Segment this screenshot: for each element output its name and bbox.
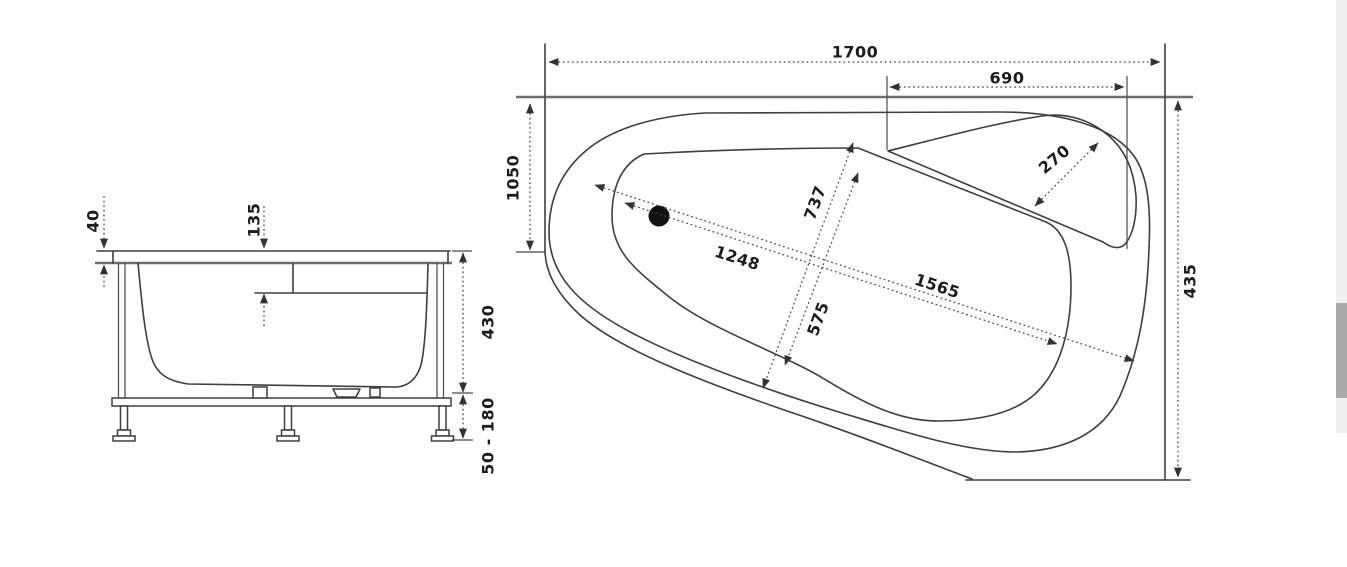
plan-view: 1700 690 1050 435 1248 1565 737 575 270 [504,43,1200,481]
dim-line-1565 [595,185,1134,361]
tub-support-pad [370,388,380,397]
dim-label-seat-depth: 135 [245,203,264,238]
dim-label-overall-length: 1700 [832,43,879,62]
leg-middle [277,406,299,441]
frame-bar [112,398,451,406]
tub-support-pad [253,387,267,398]
basin-outline [612,148,1071,421]
scrollbar-track[interactable] [1336,0,1347,433]
bathtub-spec-page: 40 135 430 50 - 180 [0,0,1347,567]
dim-label-basin-length: 1248 [712,242,762,274]
leg-right [432,406,454,441]
dim-line-1248 [625,203,1057,344]
scrollbar-thumb[interactable] [1336,303,1347,398]
dim-label-corner-shelf-length: 690 [990,69,1025,88]
tub-body-outline [138,263,428,387]
rim-end-edges [113,251,448,263]
dim-line-737 [763,143,853,388]
dim-label-leg-height-range: 50 - 180 [479,397,498,474]
dim-label-right-side: 435 [1181,264,1200,299]
side-elevation-view: 40 135 430 50 - 180 [84,196,498,475]
dim-label-left-side: 1050 [504,155,523,202]
dim-label-body-height: 430 [479,305,498,340]
dim-label-rim-height: 40 [84,209,103,232]
leg-left [113,406,135,441]
bathtub-technical-drawing: 40 135 430 50 - 180 [0,0,1347,567]
drain-trap-outline [333,389,360,397]
dim-label-basin-width: 575 [803,299,833,338]
corner-shelf-outline [888,115,1136,247]
